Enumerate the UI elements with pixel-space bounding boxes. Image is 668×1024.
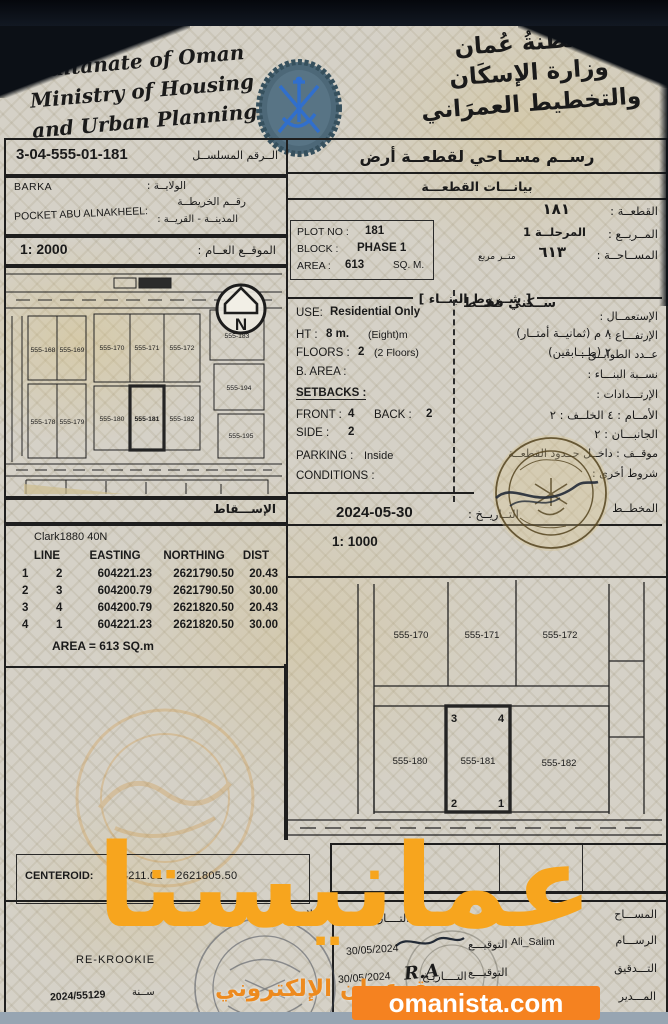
map1-plot-label: 555-178 bbox=[31, 419, 56, 426]
height-label: HT : bbox=[296, 329, 318, 341]
plot-data-subtitle-row: بيانـــات القطعـــة bbox=[288, 174, 666, 200]
map-number-label: رقــم الخريطــة bbox=[177, 196, 246, 208]
coords-cell: 3 bbox=[22, 602, 28, 614]
floors-label-ar: عــدد الطوابــق : bbox=[581, 348, 658, 361]
block-label: BLOCK : bbox=[297, 243, 338, 255]
front-label: FRONT : bbox=[296, 409, 342, 421]
plot-data-subtitle: بيانـــات القطعـــة bbox=[421, 179, 532, 194]
survey-drawing-title: رســم مســاحي لقطعــة أرض bbox=[360, 147, 595, 166]
plot-no-label: PLOT NO : bbox=[297, 226, 349, 238]
conditions-label: CONDITIONS : bbox=[296, 470, 375, 482]
coords-row: 2 3 604200.79 2621790.50 30.00 bbox=[6, 585, 282, 601]
coords-cell: 30.00 bbox=[238, 619, 278, 631]
omanista-watermark-text: عمانيستا bbox=[60, 812, 630, 962]
map1-plot-label: 555-195 bbox=[229, 433, 254, 440]
photo-edge-right bbox=[659, 26, 668, 306]
col-header-dist: DIST bbox=[234, 550, 278, 562]
general-site-scale-row: 1: 2000 الموقــع العــام : bbox=[4, 234, 288, 268]
general-site-label: الموقــع العــام : bbox=[198, 243, 276, 257]
coords-cell: 604200.79 bbox=[78, 585, 152, 597]
built-area-label: B. AREA : bbox=[296, 366, 347, 378]
village-value: POCKET ABU ALNAKHEEL: bbox=[14, 205, 148, 223]
area-unit-ar: متــر مربع bbox=[478, 252, 516, 262]
photo-of-survey-document: Sultanate of Oman Ministry of Housing an… bbox=[0, 0, 668, 1024]
height-line-ar: ٨ م (ثمانيــة أمتــار) bbox=[516, 326, 611, 340]
north-compass-icon: N bbox=[214, 280, 268, 338]
side-value: 2 bbox=[348, 426, 354, 438]
setbacks-label-ar: الإرتـــدادات : bbox=[596, 388, 658, 401]
compass-north-letter: N bbox=[235, 315, 247, 334]
coords-cell: 604221.23 bbox=[78, 619, 152, 631]
map1-plot-label: 555-170 bbox=[100, 345, 125, 352]
coords-cell: 1 bbox=[22, 568, 28, 580]
front-value: 4 bbox=[348, 408, 354, 420]
coords-cell: 2 bbox=[22, 585, 28, 597]
map1-plot-label: 555-179 bbox=[60, 419, 85, 426]
back-value: 2 bbox=[426, 408, 432, 420]
col-header-easting: EASTING bbox=[78, 550, 152, 562]
side-label: SIDE : bbox=[296, 427, 329, 439]
coords-cell: 4 bbox=[22, 619, 28, 631]
coords-cell: 20.43 bbox=[238, 568, 278, 580]
height-value: 8 m. bbox=[326, 328, 349, 340]
wilaya-value: BARKA bbox=[14, 181, 52, 193]
coords-cell: 2621790.50 bbox=[156, 568, 234, 580]
coords-cell: 2621790.50 bbox=[156, 585, 234, 597]
detail-scale-value: 1: 1000 bbox=[332, 534, 378, 549]
height-label-ar: الإرتفـــاع : bbox=[608, 329, 658, 342]
area-value-ar: ٦١٣ bbox=[539, 243, 566, 261]
coords-cell: 2621820.50 bbox=[156, 619, 234, 631]
coords-row: 3 4 604200.79 2621820.50 20.43 bbox=[6, 602, 282, 618]
block-label-ar: المــربــع : bbox=[608, 227, 658, 241]
projection-label: الإســـقاط bbox=[213, 502, 276, 516]
floors-note: (2 Floors) bbox=[374, 347, 419, 359]
coords-row: 1 2 604221.23 2621790.50 20.43 bbox=[6, 568, 282, 584]
coords-cell: 30.00 bbox=[238, 585, 278, 597]
divider bbox=[288, 492, 474, 494]
village-label: المدينــة - القريــة : bbox=[157, 214, 238, 225]
plot-info-box-en: PLOT NO : 181 BLOCK : PHASE 1 AREA : 613… bbox=[290, 220, 434, 280]
use-label: USE: bbox=[296, 307, 323, 319]
coords-cell: 2621820.50 bbox=[156, 602, 234, 614]
column-divider bbox=[453, 290, 455, 502]
block-value-ar: المرحلــة 1 bbox=[523, 225, 586, 239]
floors-value: 2 bbox=[358, 346, 364, 358]
map2-plot-label: 555-170 bbox=[394, 630, 429, 641]
plot-data-panel: رســم مســاحي لقطعــة أرض بيانـــات القط… bbox=[286, 138, 668, 578]
map2-plot-label: 555-172 bbox=[543, 630, 578, 641]
survey-date-value: 2024-05-30 bbox=[336, 504, 413, 521]
map1-plot-label: 555-168 bbox=[31, 347, 56, 354]
coords-cell: 2 bbox=[56, 568, 62, 580]
map1-plot-label: 555-180 bbox=[100, 416, 125, 423]
omanista-site-button[interactable]: omanista.com bbox=[352, 986, 600, 1020]
col-header-northing: NORTHING bbox=[154, 550, 234, 562]
map2-plot-label: 555-171 bbox=[465, 630, 500, 641]
serial-number-value: 3-04-555-01-181 bbox=[16, 146, 128, 163]
area-label: AREA : bbox=[297, 260, 331, 272]
photo-corner-top-right bbox=[518, 26, 668, 88]
serial-number-label: الــرقم المسلســل bbox=[192, 149, 278, 162]
area-label-ar: المســاحــة : bbox=[597, 248, 658, 262]
coords-cell: 20.43 bbox=[238, 602, 278, 614]
datum-label: Clark1880 40N bbox=[34, 531, 107, 543]
plot-number-ar: ١٨١ bbox=[543, 200, 570, 218]
height-note: (Eight)m bbox=[368, 329, 408, 341]
overview-map-1-2000: 555-168 555-169 555-170 555-171 555-172 … bbox=[4, 264, 288, 500]
coords-cell: 604221.23 bbox=[78, 568, 152, 580]
area-total-line: AREA = 613 SQ.m bbox=[52, 639, 154, 653]
map1-plot-label: 555-171 bbox=[135, 345, 160, 352]
wilaya-label: الولايــة : bbox=[147, 180, 186, 192]
area-value: 613 bbox=[345, 259, 364, 271]
audit-label: التـــدقيق bbox=[591, 962, 657, 975]
coords-cell: 3 bbox=[56, 585, 62, 597]
coords-cell: 604200.79 bbox=[78, 602, 152, 614]
divider bbox=[288, 297, 413, 299]
coords-cell: 1 bbox=[56, 619, 62, 631]
parking-label: PARKING : bbox=[296, 450, 353, 462]
ministry-round-stamp bbox=[490, 432, 612, 554]
divider bbox=[537, 297, 662, 299]
built-area-label-ar: نســبة البنـــاء : bbox=[588, 368, 658, 381]
map1-plot-label: 555-172 bbox=[170, 345, 195, 352]
reference-label: ســنة bbox=[132, 987, 155, 998]
reference-number: 2024/55129 bbox=[50, 989, 106, 1004]
back-label: BACK : bbox=[374, 409, 412, 421]
use-value-ar: ســكني فقــط bbox=[463, 296, 556, 311]
coords-cell: 4 bbox=[56, 602, 62, 614]
wilaya-village-row: BARKA الولايــة : POCKET ABU ALNAKHEEL: … bbox=[4, 174, 288, 238]
plot-label-ar: القطعــة : bbox=[610, 204, 658, 218]
front-back-line-ar: الأمــام : ٤ الخلــف : ٢ bbox=[550, 408, 658, 422]
map1-plot-label: 555-194 bbox=[227, 385, 252, 392]
manager-label: المـــدير bbox=[596, 990, 656, 1003]
col-header-line: LINE bbox=[26, 550, 68, 562]
map1-plot-label: 555-169 bbox=[60, 347, 85, 354]
coordinates-table-box: Clark1880 40N LINE EASTING NORTHING DIST… bbox=[4, 522, 288, 668]
coords-row: 4 1 604221.23 2621820.50 30.00 bbox=[6, 619, 282, 635]
map1-plot-label: 555-182 bbox=[170, 416, 195, 423]
setbacks-label: SETBACKS : bbox=[296, 387, 366, 400]
floors-label: FLOORS : bbox=[296, 347, 350, 359]
coords-header-row: LINE EASTING NORTHING DIST bbox=[6, 550, 282, 566]
use-value: Residential Only bbox=[330, 306, 420, 318]
map1-highlighted-plot-label: 555-181 bbox=[135, 416, 160, 423]
plot-no-value: 181 bbox=[365, 225, 384, 237]
serial-number-row: 3-04-555-01-181 الــرقم المسلســل bbox=[4, 138, 288, 178]
use-label-ar: الإستعمــال : bbox=[599, 310, 658, 323]
photo-corner-top-left bbox=[0, 26, 190, 98]
block-value: PHASE 1 bbox=[357, 242, 406, 254]
parking-value: Inside bbox=[364, 450, 393, 462]
survey-drawing-title-row: رســم مســاحي لقطعــة أرض bbox=[288, 140, 666, 174]
overview-scale-value: 1: 2000 bbox=[20, 241, 67, 257]
planner-label-ar: المخطــط bbox=[612, 502, 658, 515]
area-unit: SQ. M. bbox=[393, 260, 424, 271]
